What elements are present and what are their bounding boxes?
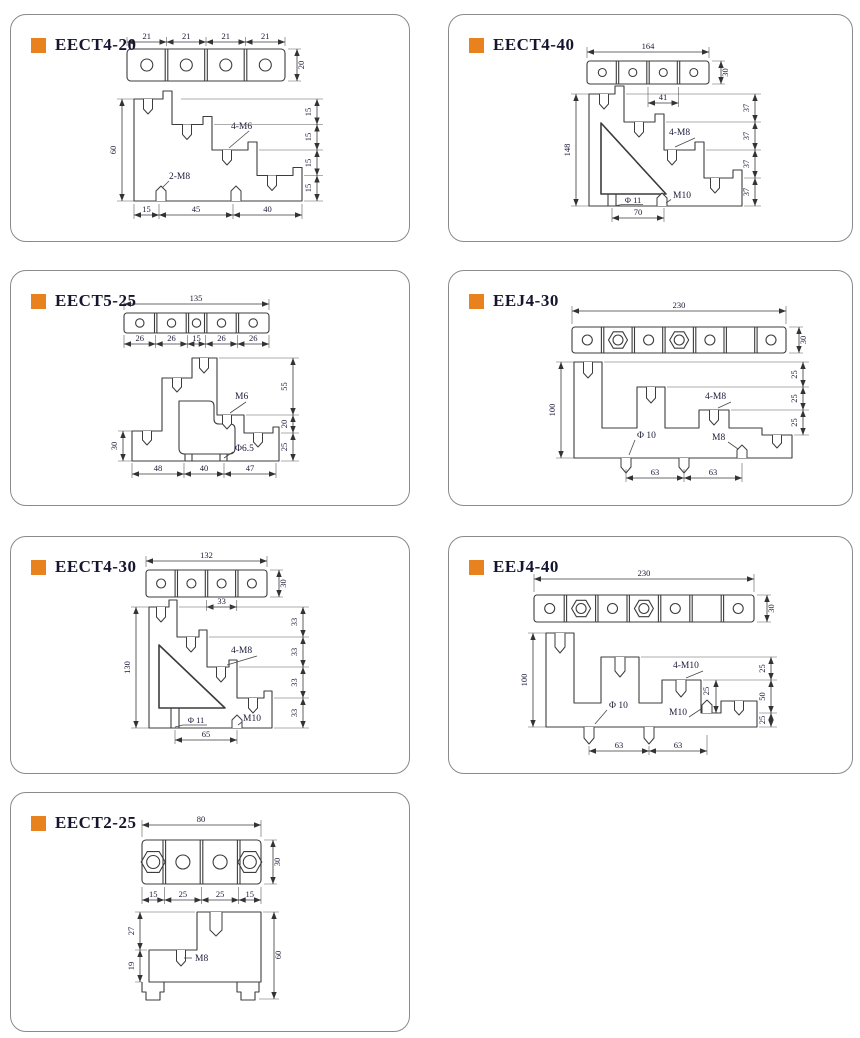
terminal-holes [141,59,271,71]
hex-nut [572,600,591,616]
dim-label: 230 [638,568,651,578]
profile-view: 4-M8 Φ 11 M10 [149,600,272,728]
profile-view: M8 [142,912,261,1000]
dim-label: 25 [757,664,767,673]
dim-label: 26 [217,333,226,343]
dim-label: 130 [122,661,132,674]
dim-label: 48 [154,463,163,473]
panel-title-text: EECT4-20 [55,35,136,55]
dim-label: 41 [659,92,668,102]
dim-label: 15 [303,133,313,142]
panel-title-text: EECT2-25 [55,813,136,833]
dim-label: 26 [249,333,258,343]
profile-view: 4-M8 Φ 10 M8 [574,362,792,473]
hole-label: Φ 11 [188,715,205,725]
dim-label: 50 [757,692,767,701]
dim-label: 25 [789,394,799,403]
panel-title: EECT2-25 [31,813,136,833]
dim-label: 21 [222,31,231,41]
hex-nut [141,852,165,873]
thread-label: M10 [673,191,691,201]
dim-label: 63 [615,740,624,750]
top-view [124,313,269,333]
profile-dimensions: 100 25 25 25 63 63 [547,362,809,482]
thread-label: 4-M8 [231,646,252,656]
bullet-icon [31,38,46,53]
terminal-holes [157,579,257,588]
dim-label: 65 [202,729,211,739]
dim-label: 19 [126,962,136,971]
hex-nut [238,852,262,873]
dim-label: 25 [701,687,711,696]
profile-dimensions: 130 33 33 33 33 65 [122,607,309,744]
dim-label: 60 [108,146,118,155]
dim-label: 37 [741,132,751,141]
catalog-page: EECT4-20 21 [0,0,860,1038]
dim-label: 80 [197,814,206,824]
dim-label: 33 [289,678,299,687]
dim-label: 25 [279,443,289,452]
foot-bolt [142,982,164,1000]
dim-label: 132 [200,550,213,560]
dim-label: 63 [674,740,683,750]
dim-label: 100 [547,404,557,417]
stud-symbols [143,358,263,447]
dim-label: 15 [246,889,255,899]
thread-label: M8 [712,433,725,443]
dim-label: 15 [303,159,313,168]
dim-label: 21 [261,31,270,41]
terminal-holes [545,600,744,616]
top-view [534,595,754,622]
terminal-holes [141,852,262,873]
dim-label: 45 [192,204,201,214]
hole-label: Φ 11 [625,195,642,205]
panel-title-text: EECT4-30 [55,557,136,577]
dim-label: 30 [766,604,776,613]
thread-label: 4-M8 [669,128,690,138]
panel-eect2-25: EECT2-25 80 30 [10,792,410,1032]
dim-label: 25 [216,889,225,899]
dim-label: 37 [741,104,751,113]
panel-eect4-40: EECT4-40 164 30 41 [448,14,853,242]
panel-title: EEJ4-30 [469,291,559,311]
dim-label: 20 [279,420,289,429]
panel-eej4-30: EEJ4-30 230 [448,270,853,506]
panel-title-text: EEJ4-40 [493,557,559,577]
foot-bolt [237,982,259,1000]
dim-label: 70 [634,207,643,217]
bullet-icon [31,294,46,309]
profile-view: 4-M8 Φ 11 M10 [589,86,742,206]
panel-title: EEJ4-40 [469,557,559,577]
stud-symbols [584,362,782,473]
panel-title: EECT4-30 [31,557,136,577]
profile-view: M6 Φ6.5 [132,358,279,461]
dim-label: 30 [720,68,730,77]
dim-label: 26 [167,333,176,343]
dim-label: 15 [303,108,313,117]
dim-label: 33 [217,596,226,606]
dim-label: 63 [709,467,718,477]
stud-symbols [600,94,720,206]
dim-label: 25 [757,716,767,725]
dim-label: 47 [246,463,255,473]
top-view-dimensions: 135 26 26 15 26 26 [124,293,269,348]
bullet-icon [31,816,46,831]
dim-label: 15 [142,204,151,214]
profile-dimensions: 30 55 20 25 48 40 47 [109,358,299,478]
panel-eej4-40: EEJ4-40 230 [448,536,853,774]
top-view [587,61,709,84]
hole-label: Φ 10 [609,701,628,711]
hole-label: Φ 10 [637,431,656,441]
bullet-icon [469,294,484,309]
terminal-holes [598,69,698,77]
triangle-cutout [159,645,225,708]
dim-label: 230 [673,300,686,310]
thread-label: M10 [243,714,261,724]
dim-label: 40 [200,463,209,473]
thread-label: M6 [235,392,248,402]
thread-label: 4-M6 [231,122,252,132]
hex-nut [609,332,628,348]
dim-label: 15 [149,889,158,899]
dim-label: 30 [109,442,119,451]
dim-label: 15 [303,184,313,193]
dim-label: 30 [272,858,282,867]
panel-title: EECT5-25 [31,291,136,311]
dim-label: 33 [289,709,299,718]
dim-label: 60 [273,951,283,960]
thread-label: M8 [195,954,208,964]
dim-label: 25 [789,418,799,427]
dim-label: 37 [741,188,751,197]
dim-label: 37 [741,160,751,169]
hex-nut [634,600,653,616]
bullet-icon [31,560,46,575]
dim-label: 148 [562,144,572,157]
profile-view: 4-M10 Φ 10 M10 25 [546,633,757,744]
dim-label: 33 [289,648,299,657]
top-view [572,327,786,353]
dim-label: 25 [179,889,188,899]
dim-label: 21 [182,31,191,41]
thread-label: M10 [669,708,687,718]
panel-title-text: EEJ4-30 [493,291,559,311]
panel-title: EECT4-20 [31,35,136,55]
hole-label: Φ6.5 [235,444,254,454]
panel-eect4-30: EECT4-30 132 30 33 [10,536,410,774]
panel-title-text: EECT4-40 [493,35,574,55]
dim-label: 25 [789,370,799,379]
panel-eect4-20: EECT4-20 21 [10,14,410,242]
dim-label: 164 [642,41,656,51]
thread-label: 4-M10 [673,661,699,671]
dim-label: 63 [651,467,660,477]
dim-label: 26 [136,333,145,343]
profile-view: 4-M6 2-M8 [134,91,302,201]
panel-title-text: EECT5-25 [55,291,136,311]
top-view-dimensions: 21 21 21 21 20 [127,31,306,81]
thread-label: 4-M8 [705,392,726,402]
dim-label: 20 [296,61,306,70]
top-view [141,840,262,884]
bullet-icon [469,38,484,53]
hex-nut [670,332,689,348]
dim-label: 100 [519,674,529,687]
dim-label: 15 [192,333,201,343]
dim-label: 27 [126,927,136,936]
thread-label: 2-M8 [169,172,190,182]
dim-label: 21 [143,31,152,41]
top-view [127,49,285,81]
panel-title: EECT4-40 [469,35,574,55]
dim-label: 30 [798,336,808,345]
dim-label: 33 [289,618,299,627]
dim-label: 40 [263,204,272,214]
top-view [146,570,267,597]
triangle-cutout [601,123,666,194]
panel-eect5-25: EECT5-25 135 26 [10,270,410,506]
dim-label: 55 [279,382,289,391]
dim-label: 30 [278,579,288,588]
terminal-holes [582,332,776,348]
bullet-icon [469,560,484,575]
dim-label: 135 [190,293,203,303]
